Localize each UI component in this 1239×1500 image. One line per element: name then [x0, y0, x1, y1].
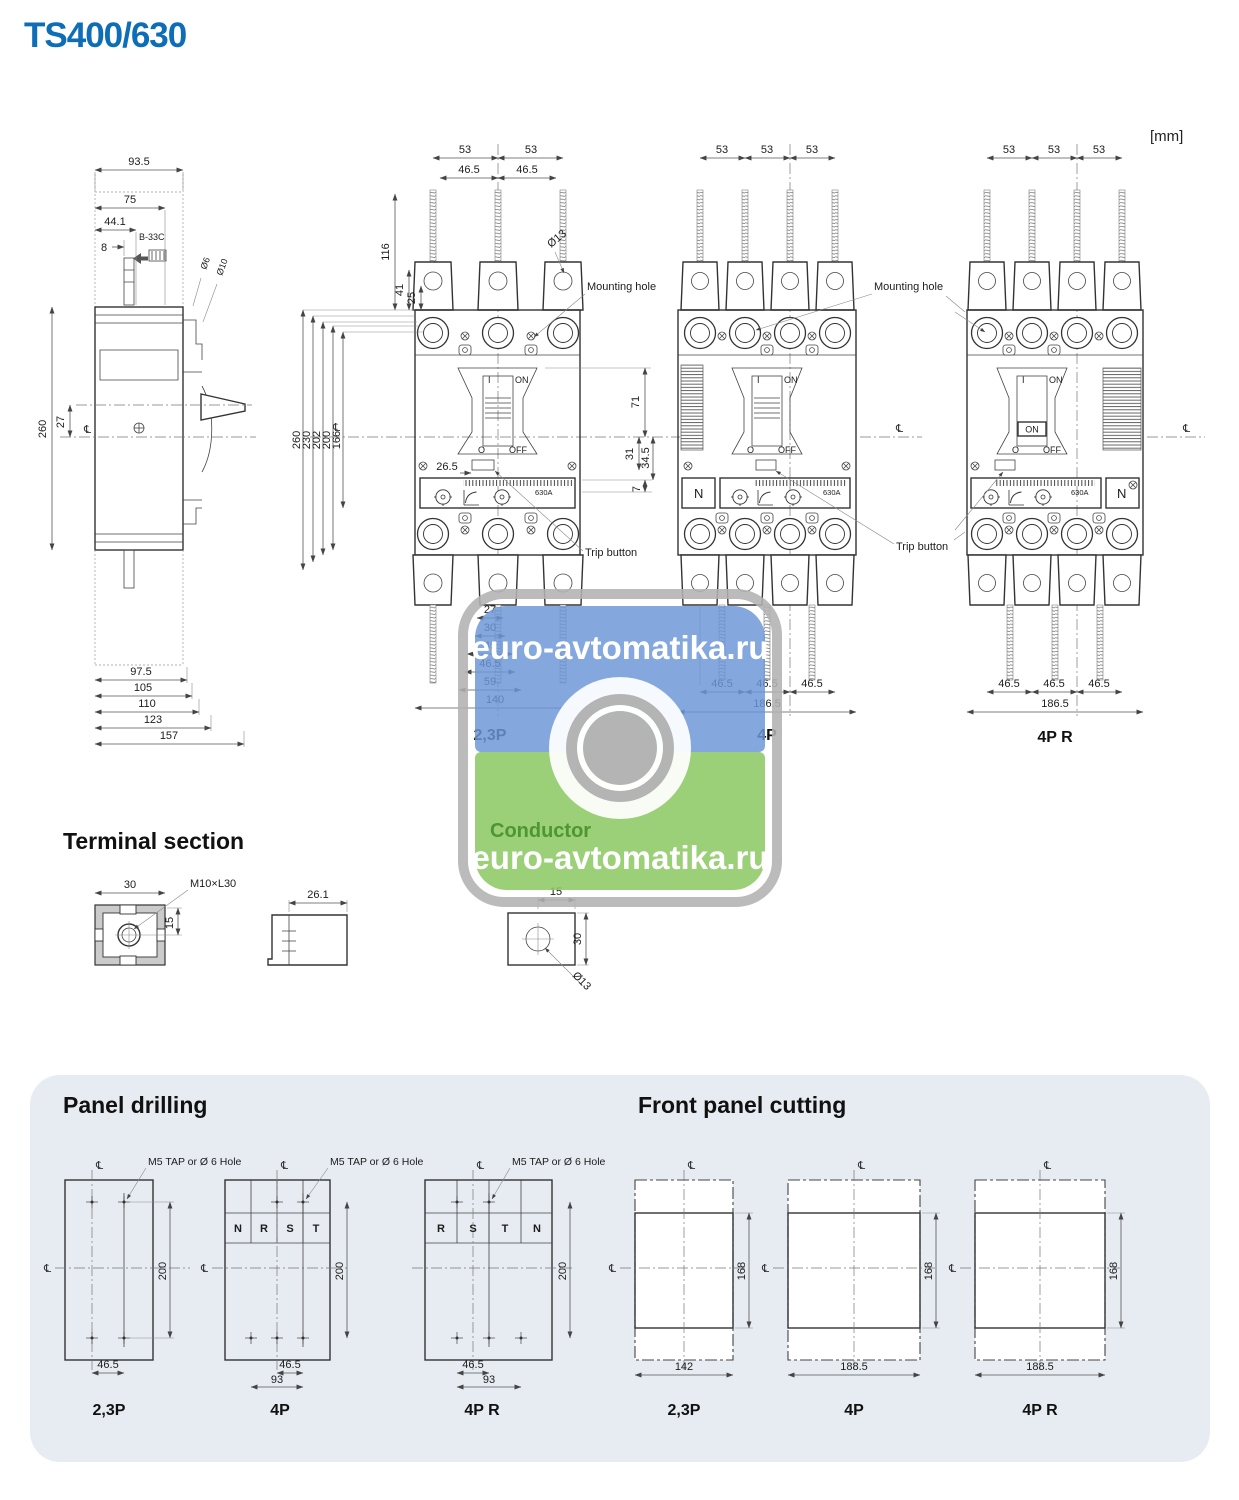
dim: 260 — [37, 420, 49, 438]
dim: 46.5 — [279, 1359, 300, 1371]
cutting-4p: ℄ ℄ 168 188.5 4P — [761, 1160, 940, 1419]
dim: 71 — [630, 396, 642, 408]
dim: 46.5 — [801, 678, 822, 690]
handle-o: O — [747, 445, 754, 455]
dim: 8 — [101, 242, 107, 254]
handle-o: O — [478, 445, 485, 455]
side-view-drawing: B-33C 93.5 75 44.1 8 260 27 ℄ Ø6 Ø10 97.… — [40, 150, 290, 770]
terminal-clamp: 26.1 — [268, 889, 347, 965]
dim: 188.5 — [1026, 1361, 1054, 1373]
phase: R — [437, 1223, 445, 1235]
dim: 75 — [124, 194, 136, 206]
dim: 53 — [761, 144, 773, 156]
breaker-4pr: I ON ON O OFF 630A N — [967, 144, 1205, 716]
dim: 200 — [157, 1262, 169, 1280]
dim: 46.5 — [97, 1359, 118, 1371]
centerline-symbol: ℄ — [608, 1263, 616, 1275]
thread-callout: M10×L30 — [190, 878, 236, 890]
phase: N — [533, 1223, 541, 1235]
dim: 123 — [144, 714, 162, 726]
dim: 31 — [624, 448, 636, 460]
dim: 97.5 — [130, 666, 151, 678]
trip-button-label: Trip button — [896, 541, 948, 553]
dim: 110 — [138, 698, 156, 710]
dim: Ø10 — [214, 257, 229, 276]
dim: 46.5 — [462, 1359, 483, 1371]
phase: N — [234, 1223, 242, 1235]
dim: 142 — [675, 1361, 693, 1373]
drill-callout: M5 TAP or Ø 6 Hole — [330, 1156, 424, 1168]
drilling-4p: N R S T ℄ ℄ M5 TAP or Ø 6 Hole 200 46.5 … — [200, 1156, 424, 1419]
handle-i: I — [757, 375, 760, 385]
cut-name-23p: 2,3P — [668, 1402, 701, 1419]
dim: 105 — [134, 682, 152, 694]
handle-off: OFF — [1043, 445, 1061, 455]
centerline-symbol: ℄ — [687, 1160, 695, 1172]
datasheet-page: TS400/630 [mm] B-33C 93.5 75 44.1 8 260 … — [0, 0, 1239, 1500]
drilling-23p: ℄ ℄ M5 TAP or Ø 6 Hole 200 46.5 2,3P — [43, 1156, 242, 1419]
handle-on: ON — [784, 375, 798, 385]
cut-name-4p: 4P — [844, 1402, 864, 1419]
rating-label: 630A — [1071, 488, 1089, 497]
dim: 53 — [1093, 144, 1105, 156]
dim: 46.5 — [998, 678, 1019, 690]
mounting-hole-label: Mounting hole — [874, 281, 943, 293]
dim: 93 — [483, 1374, 495, 1386]
cut-name-4pr: 4P R — [1022, 1402, 1058, 1419]
dim: 46.5 — [516, 164, 537, 176]
left-dims: 260 230 202 200 166 — [291, 310, 423, 570]
centerline-symbol: ℄ — [83, 424, 91, 436]
dim: 186.5 — [1041, 698, 1069, 710]
dim: 168 — [736, 1262, 748, 1280]
handle-on: ON — [515, 375, 529, 385]
dim: 168 — [923, 1262, 935, 1280]
dim: 168 — [1108, 1262, 1120, 1280]
handle-o: O — [1012, 445, 1019, 455]
side-accessory: B-33C — [133, 232, 166, 264]
drill-name-4pr: 4P R — [464, 1402, 500, 1419]
dim: 46.5 — [1043, 678, 1064, 690]
cutting-23p: ℄ ℄ 168 142 2,3P — [608, 1160, 753, 1419]
cutting-4pr: ℄ ℄ 168 188.5 4P R — [948, 1160, 1125, 1419]
dim: 26.5 — [436, 461, 457, 473]
dim: 30 — [572, 933, 584, 945]
phase: T — [313, 1223, 320, 1235]
handle-off: OFF — [778, 445, 796, 455]
centerline-symbol: ℄ — [1043, 1160, 1051, 1172]
dim: 53 — [1048, 144, 1060, 156]
handle-on-window: ON — [1025, 425, 1039, 435]
handle-i: I — [488, 375, 491, 385]
dim: 46.5 — [1088, 678, 1109, 690]
dim: 7 — [631, 486, 643, 492]
phase: T — [502, 1223, 509, 1235]
neutral-label: N — [1117, 486, 1126, 501]
watermark-site-bottom: euro-avtomatika.ru — [468, 839, 772, 877]
centerline-symbol: ℄ — [280, 1160, 288, 1172]
dim: 15 — [164, 917, 176, 929]
dim: 26.1 — [307, 889, 328, 901]
rating-label: 630A — [535, 488, 553, 497]
drilling-4pr: R S T N ℄ M5 TAP or Ø 6 Hole 200 46.5 93… — [412, 1156, 606, 1419]
centerline-symbol: ℄ — [948, 1263, 956, 1275]
phase: S — [469, 1223, 476, 1235]
centerline-symbol: ℄ — [43, 1263, 51, 1275]
phase: S — [286, 1223, 293, 1235]
neutral-label: N — [694, 486, 703, 501]
dim: 46.5 — [458, 164, 479, 176]
drill-name-4p: 4P — [270, 1402, 290, 1419]
handle-on-top: ON — [1049, 375, 1063, 385]
centerline-symbol: ℄ — [200, 1263, 208, 1275]
dim: 30 — [124, 879, 136, 891]
right-dims: 71 31 34.5 7 — [545, 368, 653, 492]
panel-drawings: ℄ ℄ M5 TAP or Ø 6 Hole 200 46.5 2,3P N R… — [30, 1075, 1210, 1465]
centerline-symbol: ℄ — [476, 1160, 484, 1172]
watermark-site-top: euro-avtomatika.ru — [468, 629, 772, 667]
centerline-symbol: ℄ — [761, 1263, 769, 1275]
watermark-center-disc — [583, 711, 657, 785]
phase: R — [260, 1223, 268, 1235]
handle-i: I — [1022, 375, 1025, 385]
dim: 34.5 — [640, 447, 652, 468]
dim: 53 — [716, 144, 728, 156]
dim: 53 — [525, 144, 537, 156]
dim: 53 — [459, 144, 471, 156]
drill-callout: M5 TAP or Ø 6 Hole — [148, 1156, 242, 1168]
dim: 53 — [806, 144, 818, 156]
centerline-symbol: ℄ — [332, 422, 340, 434]
view-name-4pr: 4P R — [1037, 729, 1073, 746]
dim: 41 — [394, 284, 406, 296]
accessory-label: B-33C — [139, 232, 165, 242]
side-dimensions: 93.5 75 44.1 8 260 27 ℄ Ø6 Ø10 97.5 105 … — [37, 156, 256, 747]
dim: 188.5 — [840, 1361, 868, 1373]
terminal-nut: 30 15 M10×L30 — [95, 878, 236, 965]
watermark: euro-avtomatika.ru Conductor euro-avtoma… — [458, 589, 782, 907]
dim: 116 — [380, 243, 392, 261]
centerline-symbol: ℄ — [1182, 423, 1190, 435]
dim: 44.1 — [104, 216, 125, 228]
trip-button-label: Trip button — [585, 547, 637, 559]
dim: 157 — [160, 730, 178, 742]
dim: 53 — [1003, 144, 1015, 156]
page-title: TS400/630 — [24, 16, 186, 56]
dimensions-4pr: 53 53 53 ℄ 46.5 46.5 46.5 186.5 4P R — [955, 144, 1190, 746]
side-body — [95, 174, 245, 665]
drill-name-23p: 2,3P — [93, 1402, 126, 1419]
drill-callout: M5 TAP or Ø 6 Hole — [512, 1156, 606, 1168]
handle-off: OFF — [509, 445, 527, 455]
dim: 200 — [334, 1262, 346, 1280]
centerline-symbol: ℄ — [895, 423, 903, 435]
mounting-hole-label: Mounting hole — [587, 281, 656, 293]
dim: Ø13 — [570, 970, 593, 993]
front-view-4pr: I ON ON O OFF 630A N 53 53 53 ℄ 46.5 — [955, 140, 1239, 785]
centerline-symbol: ℄ — [95, 1160, 103, 1172]
dim: 200 — [557, 1262, 569, 1280]
centerline-symbol: ℄ — [857, 1160, 865, 1172]
dim: 93.5 — [128, 156, 149, 168]
rating-label: 630A — [823, 488, 841, 497]
dim: Ø6 — [198, 256, 212, 271]
dim: 25 — [406, 292, 418, 304]
dim: 93 — [271, 1374, 283, 1386]
dim: 27 — [55, 416, 67, 428]
